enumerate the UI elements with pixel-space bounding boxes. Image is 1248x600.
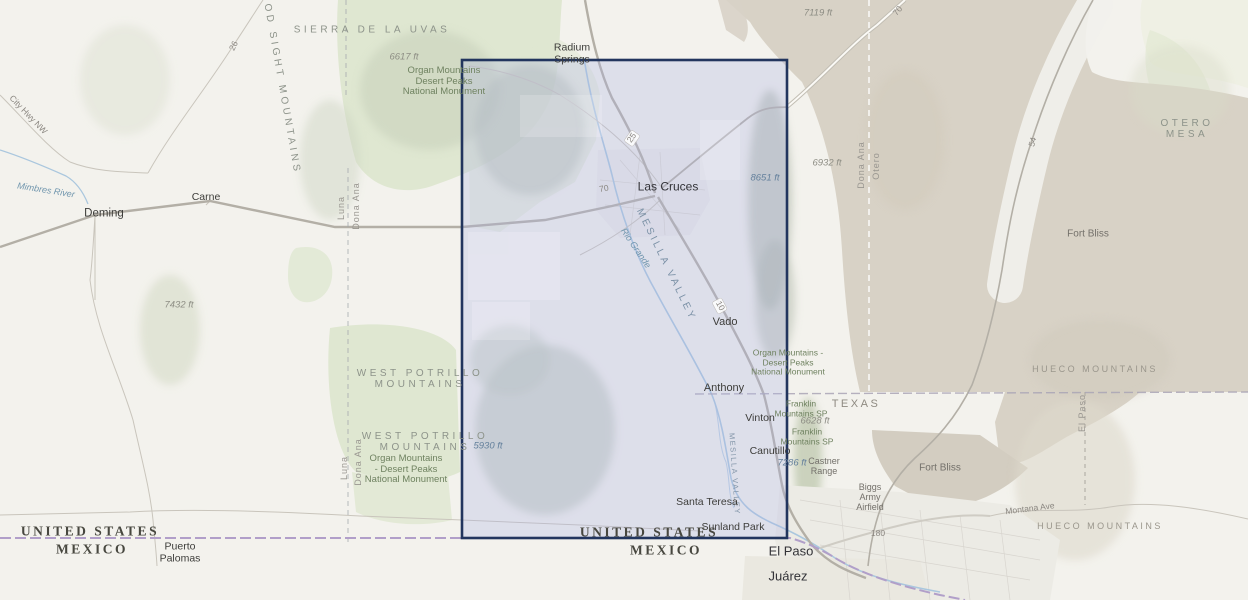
basemap-layers	[0, 0, 1248, 600]
map-canvas[interactable]: SIERRA DE LA UVAS 6617 ft Organ Mountain…	[0, 0, 1248, 600]
